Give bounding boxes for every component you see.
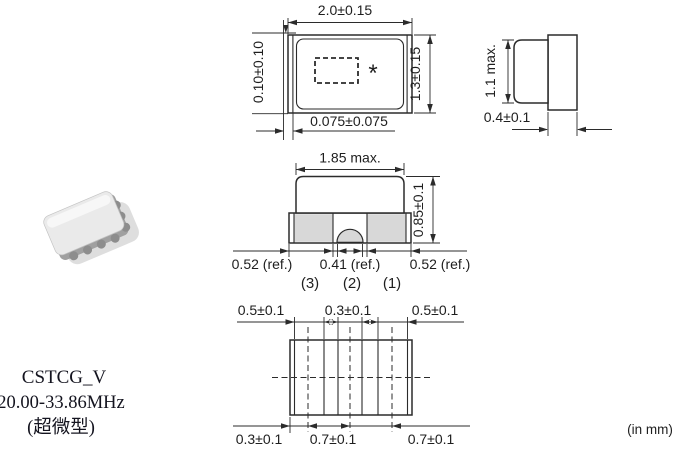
drawing-canvas: * 2.0±0.15 0.10±0.10 1.3±0.15 0.075±0.07…	[0, 0, 678, 457]
dim-pad-pitch: 0.3±0.1 0.7±0.1 0.7±0.1	[233, 417, 470, 447]
title-block: CSTCG_V 20.00-33.86MHz (超微型)	[0, 367, 125, 438]
marking-asterisk: *	[368, 60, 377, 87]
dim-top-width: 2.0±0.15	[288, 2, 412, 34]
size-note: (超微型)	[27, 417, 95, 438]
pin-3-label: (3)	[301, 275, 319, 292]
side-view-substrate	[548, 35, 577, 110]
dim-pitch-right-label: 0.7±0.1	[408, 431, 455, 447]
dim-edge-gap-label: 0.10±0.10	[250, 41, 266, 103]
frequency-range: 20.00-33.86MHz	[0, 393, 125, 413]
dim-top-height-label: 1.3±0.15	[407, 47, 423, 102]
dim-front-height: 0.85±0.1	[406, 177, 440, 244]
dim-terminal-offset: 0.075±0.075	[252, 113, 395, 140]
dim-terminal-center-label: 0.41 (ref.)	[320, 256, 381, 272]
dim-substrate-thickness-label: 0.4±0.1	[484, 109, 531, 125]
bottom-view: 0.5±0.1 0.3±0.1 0.5±0.1 0.3±0.1 0.7±0.1 …	[233, 302, 470, 447]
front-view-cap	[296, 177, 404, 214]
dim-edge-to-center-label: 0.3±0.1	[236, 431, 283, 447]
dim-front-height-label: 0.85±0.1	[410, 183, 426, 238]
pin-numbers: (3) (2) (1)	[301, 275, 401, 292]
dim-terminal-offset-label: 0.075±0.075	[310, 113, 388, 129]
dim-pitch-left-label: 0.7±0.1	[310, 431, 357, 447]
dim-terminal-right-label: 0.52 (ref.)	[410, 256, 471, 272]
front-view: 1.85 max. 0.85±0.1 0.52 (ref.) 0.41 (ref…	[232, 150, 471, 293]
unit-note: (in mm)	[627, 422, 673, 437]
side-view-cap	[514, 40, 548, 103]
side-view: 1.1 max. 0.4±0.1	[482, 35, 612, 136]
top-view: * 2.0±0.15 0.10±0.10 1.3±0.15 0.075±0.07…	[250, 2, 436, 140]
datasheet-drawing-page: * 2.0±0.15 0.10±0.10 1.3±0.15 0.075±0.07…	[0, 0, 678, 457]
top-view-body-outline	[288, 35, 412, 113]
dim-side-height-label: 1.1 max.	[482, 44, 498, 98]
dim-pad-left-width-label: 0.5±0.1	[238, 302, 285, 318]
dim-cap-width: 1.85 max.	[296, 150, 404, 176]
dim-pad-right-width-label: 0.5±0.1	[412, 302, 459, 318]
pin-2-label: (2)	[343, 275, 361, 292]
series-name: CSTCG_V	[22, 367, 107, 388]
dim-substrate-thickness: 0.4±0.1	[484, 109, 612, 136]
dim-side-height: 1.1 max.	[482, 40, 514, 103]
front-view-terminal-3	[294, 214, 333, 242]
front-view-terminal-1	[367, 214, 406, 242]
dim-pad-widths: 0.5±0.1 0.3±0.1 0.5±0.1	[237, 302, 464, 339]
dim-pad-center-width-label: 0.3±0.1	[325, 302, 372, 318]
dim-terminal-left-label: 0.52 (ref.)	[232, 256, 293, 272]
dim-cap-width-label: 1.85 max.	[319, 150, 380, 166]
dim-terminal-pitch: 0.52 (ref.) 0.41 (ref.) 0.52 (ref.)	[232, 244, 471, 272]
component-photo	[42, 185, 143, 271]
pin-1-label: (1)	[383, 275, 401, 292]
dim-top-width-label: 2.0±0.15	[318, 2, 373, 18]
